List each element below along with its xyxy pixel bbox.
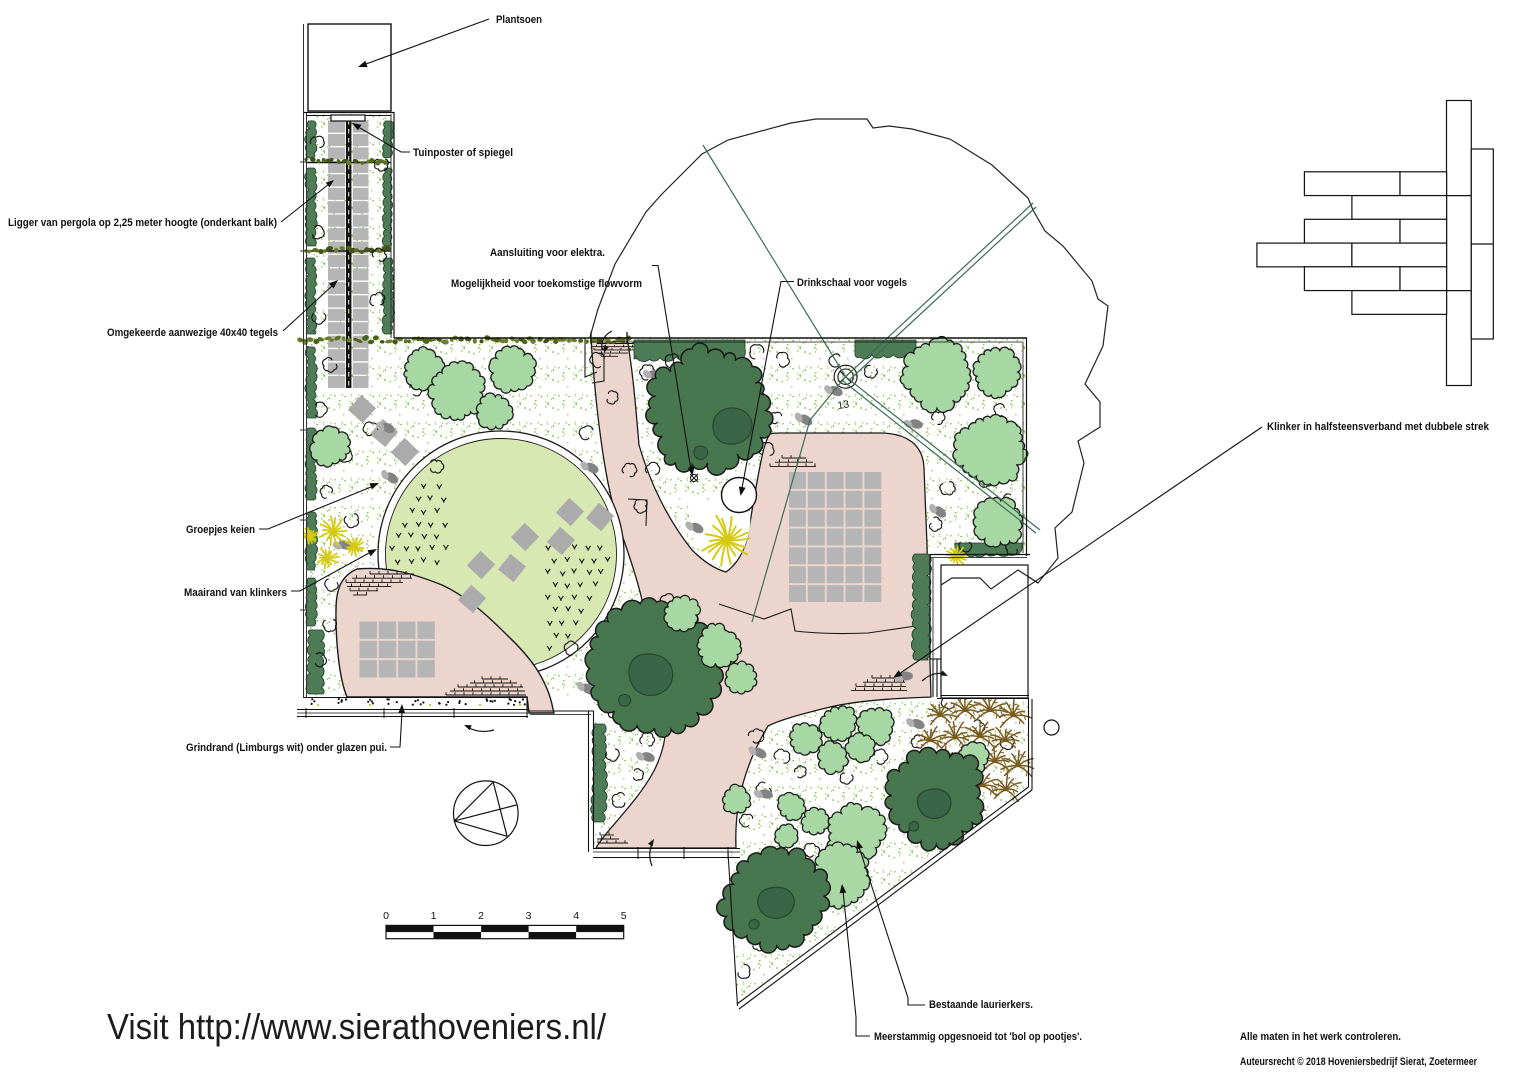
svg-text:Auteursrecht © 2018 Hoveniersb: Auteursrecht © 2018 Hoveniersbedrijf Sie… [1240, 1056, 1477, 1068]
svg-text:3: 3 [526, 910, 532, 922]
svg-text:13: 13 [837, 398, 850, 412]
svg-text:1: 1 [431, 910, 437, 922]
svg-text:Drinkschaal voor vogels: Drinkschaal voor vogels [797, 277, 907, 289]
svg-text:Mogelijkheid voor toekomstige: Mogelijkheid voor toekomstige flowvorm [451, 278, 642, 290]
svg-text:0: 0 [383, 910, 389, 922]
svg-text:Alle maten in het werk control: Alle maten in het werk controleren. [1240, 1031, 1401, 1043]
svg-text:5: 5 [621, 910, 627, 922]
svg-text:Maairand van klinkers: Maairand van klinkers [184, 587, 287, 599]
svg-text:2: 2 [478, 910, 484, 922]
svg-text:Aansluiting voor elektra.: Aansluiting voor elektra. [490, 247, 605, 259]
svg-text:Meerstammig opgesnoeid tot 'bo: Meerstammig opgesnoeid tot 'bol op pootj… [874, 1031, 1082, 1043]
svg-text:Bestaande laurierkers.: Bestaande laurierkers. [929, 999, 1033, 1011]
svg-text:Omgekeerde aanwezige 40x40 teg: Omgekeerde aanwezige 40x40 tegels [107, 327, 278, 339]
svg-text:Visit http://www.sierathovenie: Visit http://www.sierathoveniers.nl/ [107, 1006, 606, 1047]
svg-text:Ligger van pergola op 2,25 met: Ligger van pergola op 2,25 meter hoogte … [8, 217, 277, 229]
svg-text:Plantsoen: Plantsoen [496, 14, 542, 26]
svg-text:4: 4 [573, 910, 579, 922]
svg-text:Groepjes keien: Groepjes keien [186, 524, 255, 536]
svg-text:Tuinposter of spiegel: Tuinposter of spiegel [413, 147, 513, 159]
svg-text:Grindrand (Limburgs wit) onder: Grindrand (Limburgs wit) onder glazen pu… [186, 742, 387, 754]
svg-text:Klinker in halfsteensverband m: Klinker in halfsteensverband met dubbele… [1267, 421, 1490, 433]
